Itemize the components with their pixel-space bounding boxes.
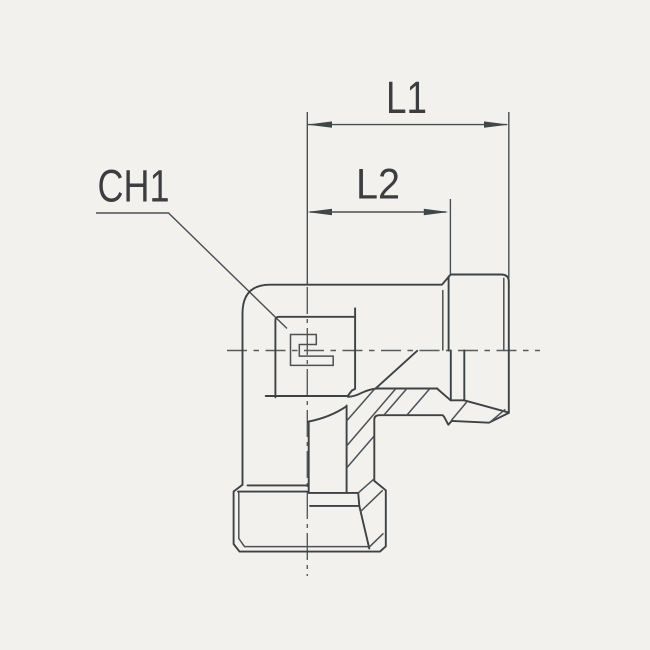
svg-text:CH1: CH1	[98, 161, 170, 212]
svg-text:L1: L1	[386, 72, 427, 123]
svg-text:L2: L2	[356, 162, 400, 209]
